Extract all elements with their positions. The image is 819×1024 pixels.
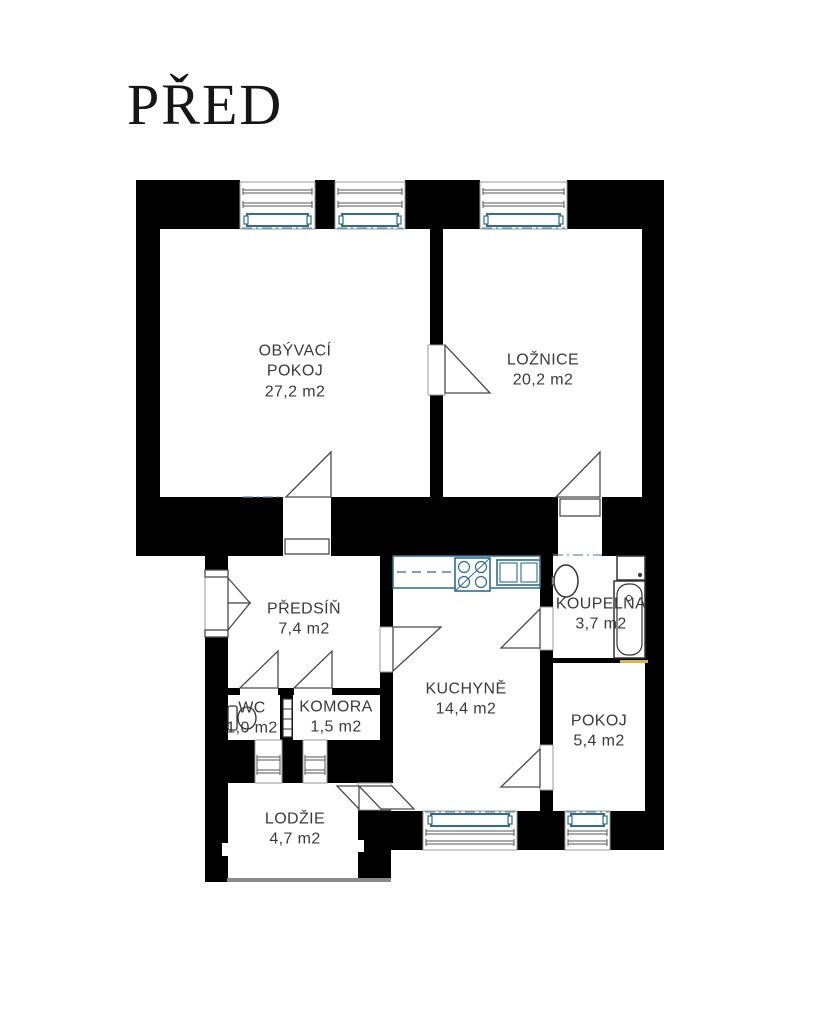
room-area: 27,2 m2 <box>234 382 356 402</box>
room-area: 3,7 m2 <box>556 615 646 635</box>
window-living-2-icon <box>335 182 405 229</box>
room-area: 14,4 m2 <box>425 700 506 720</box>
loggia-railing <box>227 878 391 882</box>
stove-icon <box>455 558 490 591</box>
door-predsin-kitchen-icon <box>380 627 441 672</box>
room-area: 5,4 m2 <box>571 732 627 752</box>
radiator-icon <box>484 214 563 226</box>
washbasin-icon <box>552 565 578 597</box>
window-pokoj-icon <box>565 811 610 850</box>
door-loggia-icon <box>337 783 414 810</box>
room-name: OBÝVACÍ POKOJ <box>234 341 356 382</box>
room-label-koupelna: KOUPELNA 3,7 m2 <box>556 595 646 636</box>
room-area: 7,4 m2 <box>267 620 341 640</box>
room-name: KOUPELNA <box>556 595 646 615</box>
room-name: PŘEDSÍŇ <box>267 600 341 620</box>
door-bedroom-icon <box>556 452 602 556</box>
door-komora-icon <box>294 651 332 688</box>
radiator-icon <box>568 814 607 826</box>
sink-icon <box>497 560 540 585</box>
boiler-icon <box>617 556 645 580</box>
door-living-bedroom-icon <box>428 345 490 395</box>
room-label-wc: WC 1,0 m2 <box>226 699 277 740</box>
door-kitchen-bathroom-icon <box>501 607 553 650</box>
room-label-komora: KOMORA 1,5 m2 <box>299 698 373 739</box>
radiator-icon <box>339 214 401 226</box>
room-label-kuchyne: KUCHYNĚ 14,4 m2 <box>425 680 506 721</box>
room-name: LOŽNICE <box>507 351 579 371</box>
window-living-1-icon <box>240 182 315 229</box>
room-name: WC <box>226 699 277 719</box>
room-area: 20,2 m2 <box>507 371 579 391</box>
room-label-lodzie: LODŽIE 4,7 m2 <box>265 810 325 851</box>
door-living-predsin-icon <box>283 452 331 556</box>
room-area: 1,0 m2 <box>226 719 277 739</box>
room-name: POKOJ <box>571 712 627 732</box>
pipe-shaft-icon <box>283 699 292 737</box>
window-wc-icon <box>255 740 282 783</box>
door-kitchen-pokoj-icon <box>501 745 553 790</box>
door-wc-icon <box>240 651 278 688</box>
room-name: KOMORA <box>299 698 373 718</box>
room-name: LODŽIE <box>265 810 325 830</box>
room-area: 1,5 m2 <box>299 718 373 738</box>
radiator-icon <box>428 814 512 826</box>
room-area: 4,7 m2 <box>265 830 325 850</box>
entrance-door-icon <box>205 570 250 637</box>
room-name: KUCHYNĚ <box>425 680 506 700</box>
floor-plan-drawing <box>0 0 819 1024</box>
floor-plan-page: PŘED <box>0 0 819 1024</box>
window-kitchen-icon <box>423 811 517 850</box>
window-bedroom-icon <box>480 182 567 229</box>
room-label-loznice: LOŽNICE 20,2 m2 <box>507 351 579 392</box>
window-komora-icon <box>303 740 327 783</box>
room-label-pokoj: POKOJ 5,4 m2 <box>571 712 627 753</box>
room-label-obyvaci-pokoj: OBÝVACÍ POKOJ 27,2 m2 <box>234 341 356 402</box>
window-icon <box>240 182 567 229</box>
gas-line-accent <box>620 660 648 663</box>
radiator-icon <box>244 214 311 226</box>
room-label-predsin: PŘEDSÍŇ 7,4 m2 <box>267 600 341 641</box>
